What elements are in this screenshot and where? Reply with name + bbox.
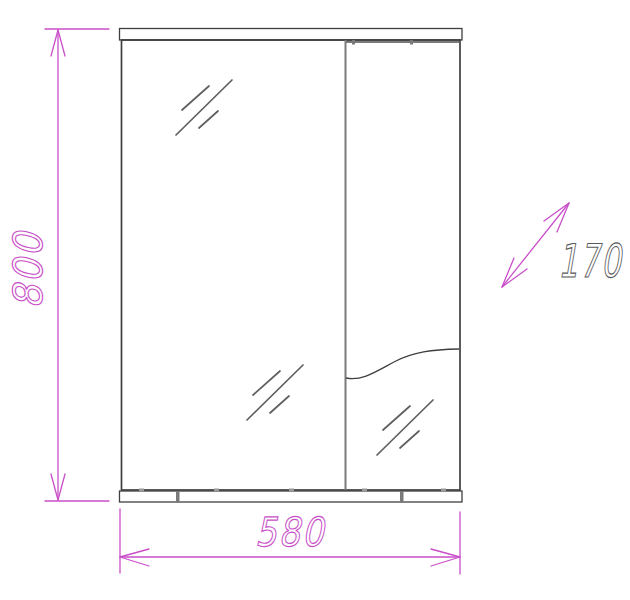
fixing-mark	[139, 489, 144, 492]
hatch-stroke	[199, 111, 218, 128]
shelf-wave-edge	[346, 349, 459, 379]
cabinet-outline	[120, 29, 463, 503]
hatch-stroke	[270, 396, 289, 413]
height-dimension-label: 800	[5, 230, 51, 309]
fixing-mark	[214, 489, 219, 492]
plinth-joint-left	[176, 491, 180, 502]
cabinet-bottom-plinth	[120, 491, 463, 502]
glass-hatch-icon-side-door	[377, 400, 433, 455]
technical-drawing-page: 800 580 170	[0, 0, 630, 600]
depth-dimension: 170	[502, 203, 623, 288]
depth-dimension-label: 170	[558, 234, 623, 288]
fixing-mark	[362, 489, 367, 492]
glass-hatch-icon-upper-mirror	[176, 80, 232, 135]
hatch-stroke	[400, 431, 419, 448]
hinge-mark-left	[352, 40, 355, 45]
fixing-mark	[289, 489, 294, 492]
hinge-mark-right	[410, 40, 413, 45]
glass-hatch-icon-lower-mirror	[247, 365, 303, 420]
cabinet-top-strip	[120, 29, 463, 41]
fixing-mark	[441, 489, 446, 492]
height-dimension: 800	[5, 29, 109, 501]
width-dimension: 580	[120, 509, 460, 574]
width-dimension-label: 580	[255, 509, 326, 555]
cad-drawing-canvas: 800 580 170	[0, 0, 630, 600]
plinth-joint-right	[400, 491, 404, 502]
